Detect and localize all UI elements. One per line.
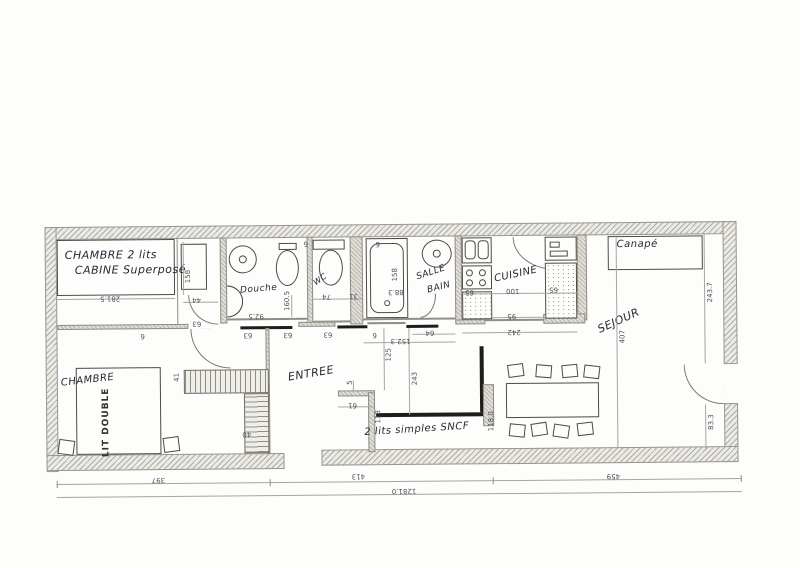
dim-tick — [270, 479, 271, 486]
dim-label: 65 — [465, 288, 474, 296]
dim-label: 63 — [283, 331, 292, 339]
chair — [509, 423, 526, 437]
dim-label: 74 — [322, 293, 331, 301]
dining-table — [506, 382, 599, 418]
dim-label: 6 — [372, 331, 377, 339]
chair — [530, 422, 548, 437]
exterior-wall-bottom-right — [321, 446, 738, 466]
dim-label: 118.0 — [487, 411, 495, 431]
door-leaf-wc — [337, 325, 367, 328]
douche-cistern — [279, 243, 297, 250]
dim-label: 9 — [304, 241, 309, 249]
nightstand-left — [58, 439, 76, 456]
dim-label: 459 — [607, 472, 620, 480]
entrance-door-arc — [684, 364, 724, 404]
dim-label: 242 — [507, 328, 520, 336]
dim-label: 44 — [192, 296, 201, 304]
dim-tick — [493, 477, 494, 484]
partition-douche-left — [220, 238, 228, 324]
chair — [552, 423, 570, 438]
dim-label: 243.7 — [706, 282, 714, 302]
room-label-cabine-1: CHAMBRE 2 lits — [65, 248, 157, 262]
chair — [535, 364, 552, 378]
exterior-wall-right-upper — [722, 221, 737, 364]
partition-cabine-strip — [177, 238, 179, 324]
dim-label: 152.3 — [390, 337, 410, 345]
sncf-bed-front — [376, 412, 484, 417]
floor-plan: CHAMBRE 2 lits CABINE Superposé Douche W… — [0, 0, 800, 568]
kitchen-appliance — [545, 236, 577, 260]
dim-label: 158 — [184, 270, 192, 283]
hob-burner-3 — [466, 279, 473, 286]
wardrobe-vertical — [244, 393, 270, 453]
dim-line — [291, 295, 292, 317]
dim-label: 61 — [348, 401, 357, 409]
dim-label: 31 — [349, 292, 358, 300]
corridor-wall-west — [57, 324, 188, 330]
room-label-douche: Douche — [240, 283, 278, 296]
dim-tick — [57, 481, 58, 488]
dim-label: 413 — [352, 472, 365, 480]
dim-tick — [741, 475, 742, 482]
dim-label: 95 — [507, 312, 516, 320]
dim-label: 83.3 — [707, 414, 715, 430]
hob-burner-2 — [479, 269, 486, 276]
exterior-wall-bottom-left — [46, 453, 284, 471]
dim-label: 6 — [140, 332, 145, 340]
dim-label: 88.3 — [388, 288, 404, 296]
bain-washbasin-drain — [433, 250, 441, 258]
dim-label: 281.5 — [100, 294, 120, 302]
kitchen-sink-basin-2 — [478, 240, 489, 259]
dim-label: 41 — [173, 373, 181, 382]
partition-cuisine-sejour — [577, 234, 588, 320]
door-arc-entree — [190, 328, 230, 368]
kitchen-hob — [462, 265, 492, 289]
bathtub-drain — [384, 300, 390, 306]
douche-wc-bowl — [276, 250, 299, 286]
hob-burner-1 — [466, 269, 473, 276]
corridor-wall-mid2 — [367, 322, 405, 324]
chair — [583, 364, 600, 379]
dim-label: 397 — [152, 476, 165, 484]
corridor-wall-mid — [298, 322, 335, 327]
room-label-bain-2: BAIN — [426, 280, 451, 296]
chair — [507, 363, 525, 378]
dim-label: 65 — [549, 286, 558, 294]
chair — [561, 364, 578, 378]
partition-wc-bain — [350, 236, 364, 324]
room-label-entree: ENTREE — [287, 363, 335, 383]
dim-label: 64 — [425, 329, 434, 337]
dim-line — [705, 404, 706, 448]
dim-label: 100 — [506, 287, 519, 295]
dim-label: 1281.0 — [392, 487, 417, 495]
dim-label: 63 — [243, 331, 252, 339]
kitchen-sink-basin-1 — [465, 240, 476, 259]
door-leaf-bain — [406, 325, 438, 328]
dim-label: 92.5 — [248, 312, 264, 320]
dim-label: 243 — [411, 372, 419, 385]
sofa-label-canape: Canapé — [617, 239, 658, 250]
door-arc-bain — [420, 294, 436, 318]
room-label-cabine-2: CABINE Superposé — [75, 263, 186, 277]
wc-cistern — [313, 239, 345, 249]
room-label-cuisine: CUISINE — [493, 264, 538, 284]
kitchen-appliance-detail-1 — [550, 242, 560, 248]
dim-label: 158 — [391, 268, 399, 281]
dim-label: 40 — [242, 430, 251, 438]
dim-label: 5 — [346, 380, 354, 385]
dim-label: 407 — [618, 330, 626, 343]
douche-washbasin-drain — [239, 255, 247, 263]
kitchen-appliance-detail-2 — [550, 251, 568, 257]
dim-label: 125 — [385, 348, 393, 361]
chair — [577, 422, 594, 437]
douche-south-wall — [227, 318, 307, 321]
corridor-wall-east — [455, 319, 485, 324]
dim-label: 9 — [376, 241, 381, 249]
wardrobe-horizontal — [184, 369, 269, 394]
dim-label: 118 — [374, 410, 382, 423]
nightstand-right — [162, 436, 180, 453]
bed-label-lit-double: LIT DOUBLE — [101, 388, 112, 458]
scanned-floor-plan-sheet: CHAMBRE 2 lits CABINE Superposé Douche W… — [0, 0, 800, 568]
hob-burner-4 — [479, 279, 486, 286]
dim-label: 63 — [323, 331, 332, 339]
dim-label: 160.5 — [283, 291, 291, 311]
dim-label: 63 — [192, 320, 201, 328]
